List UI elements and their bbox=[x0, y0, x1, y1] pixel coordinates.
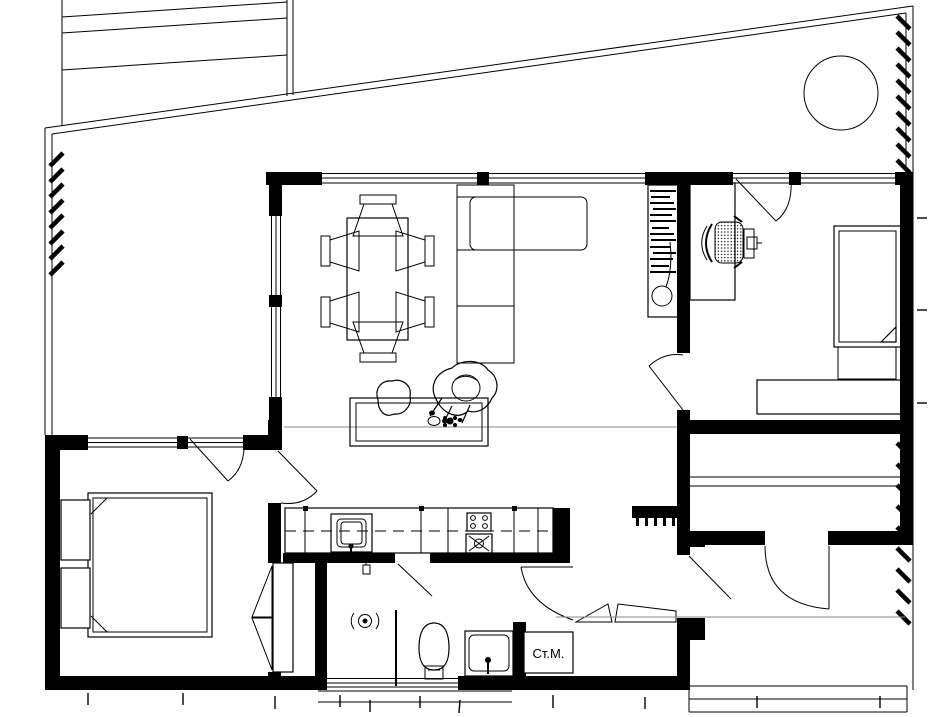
door-bedroom2-hall bbox=[278, 451, 317, 504]
ground-ticks bbox=[88, 693, 880, 713]
walkway-lines bbox=[318, 691, 512, 702]
armchair-sketch bbox=[429, 361, 497, 423]
door-storage bbox=[765, 546, 829, 609]
road-band bbox=[62, 0, 293, 126]
exterior-wall-ticks bbox=[917, 218, 927, 403]
tv-console bbox=[350, 398, 488, 446]
washing-machine: Ст.М. bbox=[524, 632, 573, 673]
floor-drain bbox=[351, 613, 379, 629]
boundary-hatch-right-top bbox=[897, 16, 910, 173]
toilet bbox=[419, 623, 449, 679]
dresser bbox=[757, 380, 901, 414]
door-hall-corridor bbox=[521, 567, 573, 620]
cabinet-handle bbox=[363, 563, 370, 574]
faucet bbox=[348, 543, 353, 548]
door-corridor-terrace bbox=[689, 556, 731, 599]
entry-door-leaves bbox=[576, 604, 676, 622]
window-bedroom1-top bbox=[733, 174, 895, 184]
floor-plan-canvas: Ст.М. bbox=[0, 0, 949, 717]
sofa-sectional bbox=[457, 185, 587, 363]
closet-rod bbox=[690, 477, 900, 486]
door-bedroom1-entry bbox=[736, 179, 791, 221]
window-bedroom2-top bbox=[88, 438, 243, 447]
door-living-office bbox=[649, 354, 683, 410]
washbasin bbox=[465, 631, 513, 676]
pillow-2 bbox=[61, 568, 90, 628]
bed-bench bbox=[838, 347, 896, 379]
bookshelf bbox=[648, 185, 678, 317]
washing-machine-label: Ст.М. bbox=[533, 646, 565, 661]
door-bathroom bbox=[398, 564, 432, 596]
single-bed bbox=[834, 226, 901, 379]
double-bed bbox=[61, 493, 212, 637]
stove bbox=[466, 513, 492, 553]
wardrobe bbox=[252, 563, 293, 672]
dining-chair-right-1 bbox=[396, 231, 434, 271]
floor-lamp bbox=[652, 286, 672, 306]
pillow-1 bbox=[61, 500, 90, 560]
door-bedroom2-garden bbox=[190, 439, 244, 481]
radiator bbox=[632, 506, 690, 526]
plot-boundary bbox=[45, 6, 913, 690]
terrace-steps bbox=[689, 686, 907, 712]
tree-circle bbox=[804, 56, 878, 130]
decor-bowl bbox=[428, 417, 440, 426]
dining-chair-left-2 bbox=[321, 292, 359, 332]
dining-chair-top bbox=[353, 195, 403, 236]
kitchen-counter bbox=[285, 506, 553, 553]
site-plot bbox=[45, 0, 913, 690]
window-bathroom-bottom bbox=[327, 679, 458, 688]
dining-chair-left-1 bbox=[321, 231, 359, 271]
office-chair bbox=[702, 216, 762, 268]
